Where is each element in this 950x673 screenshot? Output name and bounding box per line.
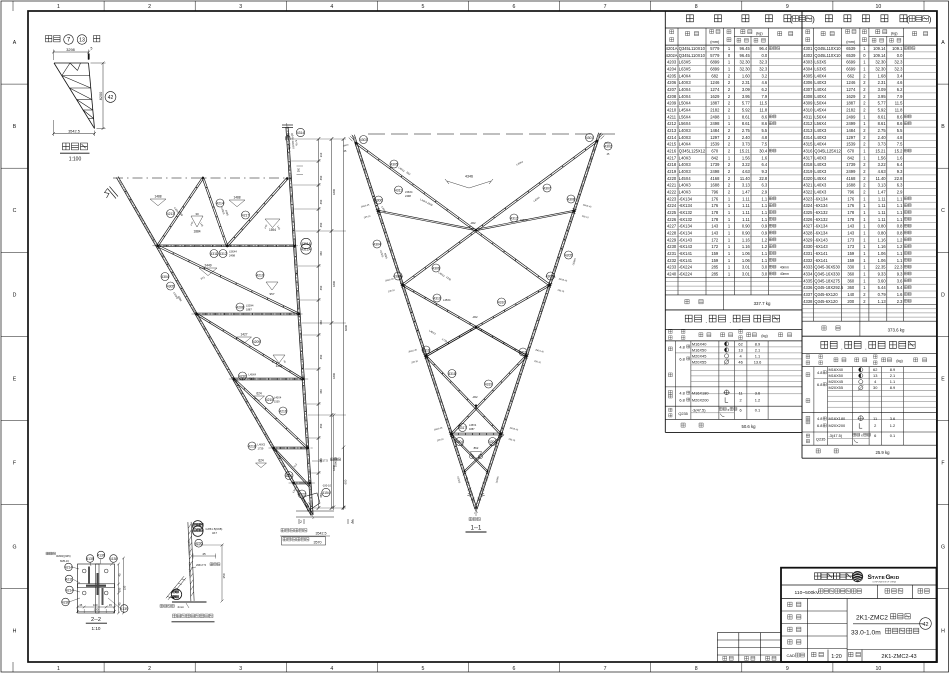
svg-text:L40X3: L40X3: [679, 155, 692, 160]
svg-text:-6X141: -6X141: [679, 258, 693, 263]
svg-text:30: 30: [195, 212, 199, 216]
svg-text:Q345-6X120: Q345-6X120: [814, 292, 838, 297]
svg-text:4212: 4212: [667, 121, 677, 126]
svg-text:M16X180: M16X180: [692, 390, 709, 395]
svg-text:1.1: 1.1: [897, 217, 903, 222]
svg-text:3.6: 3.6: [755, 390, 760, 395]
svg-text:1.11: 1.11: [742, 203, 750, 208]
svg-text:4318: 4318: [448, 372, 456, 376]
svg-text:2498: 2498: [710, 114, 720, 119]
svg-text:4311: 4311: [395, 188, 402, 192]
svg-text:0.80: 0.80: [878, 224, 887, 229]
svg-text:2.31: 2.31: [878, 80, 887, 85]
svg-text:4218: 4218: [667, 162, 677, 167]
svg-text:3.2: 3.2: [761, 73, 767, 78]
svg-text:3/1?: 3/1?: [212, 531, 218, 535]
svg-text:1.1: 1.1: [761, 258, 767, 263]
svg-text:4305: 4305: [167, 284, 175, 288]
svg-text:L40X4: L40X4: [679, 142, 692, 147]
svg-text:1090-10: 1090-10: [334, 457, 338, 467]
svg-text:1234: 1234: [276, 364, 283, 368]
svg-text:-6X134: -6X134: [679, 203, 693, 208]
svg-text:4210: 4210: [256, 273, 264, 277]
svg-text:178: 178: [711, 210, 719, 215]
svg-text:4168: 4168: [249, 377, 255, 381]
svg-text:285: 285: [711, 272, 719, 277]
svg-text:Q345-18X275: Q345-18X275: [814, 278, 840, 283]
svg-text:4.6: 4.6: [897, 80, 903, 85]
svg-text:109.14: 109.14: [873, 53, 886, 58]
svg-text:L40X3: L40X3: [679, 128, 692, 133]
svg-text:450: 450: [319, 423, 323, 428]
svg-text:-6X132: -6X132: [814, 217, 828, 222]
svg-text:9.3: 9.3: [761, 169, 767, 174]
svg-text:C: C: [941, 208, 945, 214]
svg-text:2mm: 2mm: [178, 605, 185, 609]
svg-text:L63X5: L63X5: [814, 67, 827, 72]
svg-text:-6X134: -6X134: [679, 231, 693, 236]
svg-text:4306: 4306: [803, 80, 813, 85]
svg-text:(kg): (kg): [896, 359, 903, 363]
svg-text:1.1: 1.1: [897, 196, 903, 201]
svg-text:-302: -302: [472, 395, 478, 399]
svg-text:0.8: 0.8: [897, 231, 903, 236]
svg-text:3.09: 3.09: [878, 87, 887, 92]
svg-text:5.92: 5.92: [878, 108, 887, 113]
svg-text:1.1: 1.1: [755, 353, 760, 358]
svg-text:CORPORATION OF CHINA: CORPORATION OF CHINA: [872, 581, 896, 584]
svg-text:1297: 1297: [710, 135, 720, 140]
svg-text:140: 140: [847, 292, 855, 297]
svg-text:5779: 5779: [294, 140, 298, 146]
svg-text:M16X180: M16X180: [829, 416, 846, 421]
svg-text:4216: 4216: [279, 409, 287, 413]
svg-text:x: x: [728, 408, 730, 412]
svg-text:4154: 4154: [322, 491, 330, 495]
svg-text:1.2: 1.2: [890, 423, 895, 428]
svg-text:1.06: 1.06: [878, 251, 887, 256]
svg-text:0.1: 0.1: [890, 433, 895, 438]
svg-text:5: 5: [91, 47, 93, 51]
svg-text:4215: 4215: [266, 398, 274, 402]
svg-text:1887: 1887: [469, 428, 475, 431]
svg-text:4213: 4213: [167, 212, 175, 216]
svg-text:7.9: 7.9: [897, 94, 903, 99]
svg-text:1739: 1739: [258, 447, 264, 451]
svg-text:6.3: 6.3: [761, 183, 767, 188]
svg-text:4226: 4226: [667, 217, 677, 222]
svg-text:0.90: 0.90: [742, 231, 751, 236]
svg-text:-3(47.5): -3(47.5): [829, 433, 843, 438]
svg-text:4.8: 4.8: [817, 416, 822, 421]
svg-text:GX51.5(6X8): GX51.5(6X8): [206, 527, 223, 531]
svg-text:L45X4: L45X4: [814, 176, 827, 181]
svg-text:4304: 4304: [161, 275, 169, 279]
svg-text:L56X4: L56X4: [229, 250, 237, 254]
svg-text:4.8: 4.8: [817, 370, 822, 375]
svg-text:0.90: 0.90: [742, 224, 751, 229]
svg-text:176: 176: [847, 196, 855, 201]
svg-text:176: 176: [711, 196, 719, 201]
svg-text:1.11: 1.11: [742, 196, 750, 201]
svg-text:4168: 4168: [846, 176, 856, 181]
svg-text:5.92: 5.92: [742, 108, 751, 113]
svg-text:173: 173: [847, 237, 855, 242]
svg-text:6.8: 6.8: [679, 356, 684, 361]
svg-text:8: 8: [695, 666, 698, 672]
svg-text:4213: 4213: [667, 128, 677, 133]
svg-text:1: 1: [57, 666, 60, 672]
svg-text:4220: 4220: [667, 176, 677, 181]
svg-text:2.3: 2.3: [897, 299, 903, 304]
svg-text:4305: 4305: [803, 73, 813, 78]
svg-text:159: 159: [847, 258, 855, 263]
svg-text:3.0: 3.0: [761, 265, 767, 270]
svg-text:4327: 4327: [803, 224, 813, 229]
svg-text:1274: 1274: [710, 87, 720, 92]
svg-text:45: 45: [118, 602, 122, 605]
svg-text:2498: 2498: [405, 194, 411, 198]
svg-text:4307: 4307: [803, 87, 813, 92]
svg-text:4219: 4219: [667, 169, 677, 174]
svg-text:B: B: [941, 124, 945, 130]
svg-text:100: 100: [118, 587, 122, 592]
svg-text:-6X143: -6X143: [814, 244, 828, 249]
svg-text:4323: 4323: [803, 196, 813, 201]
svg-text:11: 11: [873, 416, 877, 421]
svg-text:4311: 4311: [803, 114, 813, 119]
svg-text:L63X5: L63X5: [679, 67, 692, 72]
svg-text:8.6: 8.6: [761, 121, 767, 126]
svg-text:1.11: 1.11: [742, 217, 750, 222]
svg-text:6.8: 6.8: [817, 423, 822, 428]
svg-text:4: 4: [330, 4, 333, 10]
svg-text:1.1: 1.1: [897, 203, 903, 208]
svg-text:4346: 4346: [465, 175, 473, 179]
svg-text:M16X40: M16X40: [692, 341, 707, 346]
svg-text:842: 842: [847, 155, 855, 160]
svg-text:D: D: [13, 292, 17, 298]
svg-text:4309: 4309: [803, 101, 813, 106]
svg-text:): ): [929, 15, 932, 24]
svg-text:TATE: TATE: [872, 575, 886, 581]
svg-text:4214: 4214: [65, 565, 73, 569]
svg-text:L40X3: L40X3: [679, 183, 692, 188]
svg-text:4.8: 4.8: [679, 390, 684, 395]
svg-text:4314: 4314: [297, 131, 305, 135]
svg-text:150: 150: [123, 585, 127, 590]
svg-text:-6X143: -6X143: [814, 237, 828, 242]
svg-text:3.13: 3.13: [742, 183, 751, 188]
svg-text:45: 45: [118, 573, 122, 576]
svg-text:360: 360: [847, 285, 855, 290]
svg-text:1.16: 1.16: [878, 237, 887, 242]
svg-text:624: 624: [258, 458, 264, 462]
svg-text:25.9 kg: 25.9 kg: [875, 450, 890, 455]
svg-text:1.2: 1.2: [897, 244, 903, 249]
svg-text:22.35: 22.35: [875, 265, 886, 270]
svg-text:Q345L110X10: Q345L110X10: [679, 46, 706, 51]
svg-text:11.8: 11.8: [760, 108, 768, 113]
svg-text:4240: 4240: [667, 272, 677, 277]
svg-text:4317: 4317: [803, 155, 813, 160]
svg-text:L56X4: L56X4: [814, 121, 827, 126]
svg-text:8.9: 8.9: [755, 341, 760, 346]
svg-text:G: G: [12, 545, 16, 551]
svg-text:-6X224: -6X224: [679, 272, 693, 277]
svg-text:1539: 1539: [710, 142, 720, 147]
svg-text:L50X4: L50X4: [679, 101, 692, 106]
svg-text:8200: 8200: [344, 325, 348, 331]
svg-text:L40X3: L40X3: [679, 80, 692, 85]
svg-text:4308: 4308: [567, 197, 575, 201]
svg-text:11: 11: [739, 390, 743, 395]
svg-text:4228: 4228: [667, 231, 677, 236]
svg-text:1.2: 1.2: [761, 237, 767, 242]
svg-text:4311: 4311: [210, 252, 217, 256]
svg-text:4233: 4233: [667, 265, 677, 270]
svg-text:4: 4: [330, 666, 333, 672]
svg-text:4321: 4321: [803, 183, 813, 188]
svg-text:M20X55: M20X55: [692, 359, 707, 364]
svg-text:96.45: 96.45: [740, 53, 751, 58]
svg-text:1.1: 1.1: [890, 379, 895, 384]
svg-text:L40X3: L40X3: [814, 155, 827, 160]
svg-text:22.3: 22.3: [894, 265, 903, 270]
svg-text:(kg): (kg): [761, 334, 768, 338]
svg-text:2498: 2498: [710, 121, 720, 126]
svg-text:1484: 1484: [846, 128, 856, 133]
svg-text:4312A: 4312A: [301, 247, 312, 251]
svg-text:5779: 5779: [710, 53, 720, 58]
svg-text:1.6: 1.6: [761, 155, 767, 160]
svg-text:3.01: 3.01: [742, 272, 751, 277]
svg-text:450: 450: [319, 222, 323, 227]
svg-text:6.4: 6.4: [761, 162, 767, 167]
svg-text:CAD: CAD: [787, 653, 796, 658]
svg-text:4210: 4210: [667, 108, 677, 113]
svg-text:-6X141: -6X141: [814, 258, 828, 263]
svg-text:1.60: 1.60: [742, 73, 751, 78]
svg-text:L45X4: L45X4: [814, 108, 827, 113]
svg-text:1484: 1484: [710, 128, 720, 133]
svg-text:173: 173: [847, 244, 855, 249]
svg-text:600: 600: [344, 479, 348, 484]
svg-text:1.1: 1.1: [761, 217, 767, 222]
svg-text:6.2: 6.2: [761, 87, 767, 92]
svg-text:4303: 4303: [803, 60, 813, 65]
svg-text:450: 450: [319, 251, 323, 256]
svg-text:4138: 4138: [110, 557, 118, 561]
svg-text:13: 13: [738, 347, 742, 352]
svg-text:4301: 4301: [586, 136, 594, 140]
svg-text:4319: 4319: [803, 169, 813, 174]
svg-text:9.3: 9.3: [897, 169, 903, 174]
svg-text:42: 42: [923, 622, 929, 628]
svg-text:1739: 1739: [846, 162, 856, 167]
svg-text:4230: 4230: [667, 244, 677, 249]
svg-text:11.5: 11.5: [895, 101, 903, 106]
svg-text:109.1: 109.1: [892, 46, 903, 51]
svg-text:3: 3: [239, 4, 242, 10]
svg-text:2182: 2182: [846, 108, 856, 113]
svg-text:4231: 4231: [667, 251, 677, 256]
svg-text:32.3: 32.3: [759, 60, 768, 65]
svg-text:30.4: 30.4: [759, 149, 768, 154]
svg-text:L45X4: L45X4: [443, 298, 451, 302]
svg-text:7.5: 7.5: [761, 142, 767, 147]
svg-text:796: 796: [847, 190, 855, 195]
svg-text:-6X143: -6X143: [679, 237, 693, 242]
svg-text:E: E: [941, 376, 945, 382]
svg-text:4329: 4329: [803, 237, 813, 242]
svg-text:2.9: 2.9: [761, 190, 767, 195]
svg-text:1.11: 1.11: [878, 196, 886, 201]
svg-text:6699: 6699: [846, 67, 856, 72]
svg-text:L63X5: L63X5: [679, 60, 692, 65]
svg-text:6: 6: [740, 407, 742, 412]
svg-text:46: 46: [738, 359, 742, 364]
svg-text:1488: 1488: [154, 194, 161, 198]
svg-text:4316: 4316: [422, 348, 430, 352]
svg-text:2.1: 2.1: [755, 347, 760, 352]
svg-text:6.3: 6.3: [897, 183, 903, 188]
svg-text:2: 2: [300, 520, 302, 524]
svg-text:4328: 4328: [803, 231, 813, 236]
svg-text:1887: 1887: [710, 101, 720, 106]
svg-text:Q345-18X292.5: Q345-18X292.5: [814, 285, 844, 290]
svg-text:6: 6: [874, 433, 876, 438]
svg-text:670: 670: [847, 149, 855, 154]
svg-text:2K1-ZMC2-43: 2K1-ZMC2-43: [881, 654, 916, 660]
svg-text:3.6: 3.6: [890, 416, 895, 421]
svg-text:Q345-16X330: Q345-16X330: [814, 272, 840, 277]
svg-text:15.21: 15.21: [740, 149, 751, 154]
svg-text:1.1: 1.1: [897, 210, 903, 215]
svg-text:L40X3: L40X3: [258, 443, 266, 447]
svg-text:Q345L110X10: Q345L110X10: [814, 46, 841, 51]
svg-text:3.73: 3.73: [742, 142, 751, 147]
svg-text:143: 143: [711, 224, 719, 229]
svg-text:0.1: 0.1: [755, 407, 760, 412]
svg-text:4205: 4205: [667, 73, 677, 78]
svg-text:3.60: 3.60: [878, 278, 887, 283]
svg-text:4223: 4223: [667, 196, 677, 201]
svg-text:Q345L110X10: Q345L110X10: [679, 53, 706, 58]
svg-text:4208: 4208: [667, 94, 677, 99]
svg-text:-6X141: -6X141: [679, 251, 693, 256]
svg-text:11.40: 11.40: [876, 176, 887, 181]
svg-text:2499: 2499: [846, 169, 856, 174]
svg-text:L40X3: L40X3: [814, 169, 827, 174]
svg-text:E: E: [13, 376, 17, 382]
svg-text:6699: 6699: [846, 60, 856, 65]
svg-text:Q345-36X530: Q345-36X530: [814, 265, 840, 270]
svg-text:32.30: 32.30: [740, 67, 751, 72]
svg-text:-6X134: -6X134: [814, 224, 828, 229]
svg-text:4337: 4337: [803, 292, 813, 297]
svg-text:6539: 6539: [846, 53, 856, 58]
svg-text:2.40: 2.40: [878, 135, 887, 140]
svg-text:1884: 1884: [193, 230, 200, 234]
svg-text:4315: 4315: [803, 142, 813, 147]
svg-text:8.61: 8.61: [742, 121, 751, 126]
svg-text:4326: 4326: [803, 217, 813, 222]
svg-text:7.9: 7.9: [761, 94, 767, 99]
svg-text:1594: 1594: [269, 228, 276, 232]
svg-text:178: 178: [847, 210, 855, 215]
svg-text:Q235: Q235: [816, 437, 826, 442]
svg-text:9.33: 9.33: [878, 272, 887, 277]
svg-text:4335: 4335: [803, 278, 813, 283]
svg-text:8.9: 8.9: [890, 367, 895, 372]
svg-text:L40X3: L40X3: [679, 162, 692, 167]
svg-text:3.22: 3.22: [878, 162, 887, 167]
svg-text:373.6 kg: 373.6 kg: [888, 327, 905, 332]
svg-text:1.47: 1.47: [742, 190, 751, 195]
svg-text:350: 350: [222, 573, 226, 578]
svg-text:5.5: 5.5: [761, 128, 767, 133]
svg-text:6899: 6899: [710, 60, 720, 65]
svg-text:4312: 4312: [219, 252, 227, 256]
svg-text:4139: 4139: [120, 607, 128, 611]
svg-text:1.1: 1.1: [897, 251, 903, 256]
svg-text:8200: 8200: [99, 92, 103, 100]
svg-text:L56X4: L56X4: [679, 114, 692, 119]
svg-text:862: 862: [474, 446, 479, 450]
svg-text:L56X4: L56X4: [520, 218, 528, 222]
svg-text:4310: 4310: [498, 300, 506, 304]
svg-text:11.5: 11.5: [760, 101, 768, 106]
svg-text:4301: 4301: [803, 46, 813, 51]
svg-text:-6X132: -6X132: [679, 210, 693, 215]
svg-text:L40X4: L40X4: [814, 94, 827, 99]
svg-text:4316: 4316: [803, 149, 813, 154]
svg-text:450: 450: [319, 389, 323, 394]
svg-text:5.5: 5.5: [897, 128, 903, 133]
svg-text:1.06: 1.06: [878, 258, 887, 263]
svg-text:L45X4: L45X4: [679, 176, 692, 181]
svg-text:3.09: 3.09: [742, 87, 751, 92]
svg-text:2.1: 2.1: [890, 373, 895, 378]
svg-text:4336: 4336: [803, 285, 813, 290]
svg-text:3.73: 3.73: [878, 142, 887, 147]
svg-text:670: 670: [711, 149, 719, 154]
svg-text:178: 178: [711, 217, 719, 222]
svg-text:15.2: 15.2: [894, 149, 903, 154]
svg-text:4136: 4136: [97, 553, 105, 557]
svg-text:300: 300: [298, 167, 301, 172]
svg-text:4.6: 4.6: [761, 80, 767, 85]
svg-text:6.4: 6.4: [897, 162, 903, 167]
svg-text:1:10: 1:10: [92, 626, 101, 631]
svg-text:M16X50: M16X50: [829, 373, 844, 378]
svg-text:B: B: [13, 124, 17, 130]
svg-text:6: 6: [513, 666, 516, 672]
svg-text:(mm): (mm): [846, 39, 856, 44]
svg-text:1.56: 1.56: [878, 155, 887, 160]
svg-text:F: F: [13, 461, 16, 467]
svg-text:2.75: 2.75: [878, 128, 887, 133]
svg-text:1:100: 1:100: [69, 157, 82, 163]
svg-text:5.4: 5.4: [897, 285, 903, 290]
svg-text:96.4: 96.4: [759, 46, 768, 51]
svg-text:4201A: 4201A: [666, 46, 678, 51]
svg-text:4313: 4313: [803, 128, 813, 133]
svg-text:450: 450: [319, 285, 323, 290]
svg-text:3570: 3570: [314, 541, 322, 545]
svg-text:32.3: 32.3: [759, 67, 768, 72]
